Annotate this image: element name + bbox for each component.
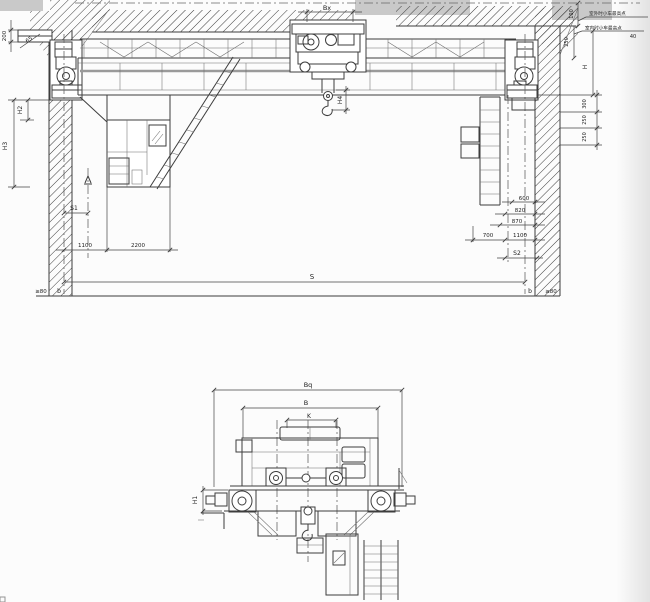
dim-roof-250: 250 bbox=[564, 37, 570, 47]
dim-bx-label: Bx bbox=[323, 4, 331, 12]
dim-h2: H2 bbox=[17, 106, 24, 115]
dim-h3: H3 bbox=[2, 142, 9, 151]
dim-600: 600 bbox=[519, 196, 530, 202]
dim-span-label: S bbox=[310, 273, 315, 281]
dim-min80-right: ≥80 bbox=[545, 289, 557, 295]
right-column bbox=[535, 26, 560, 296]
dim-870: 870 bbox=[512, 219, 523, 225]
operator-cab bbox=[80, 95, 170, 187]
right-end-truck bbox=[505, 34, 538, 294]
dim-roof-100: 100 bbox=[569, 9, 575, 19]
dim-250-a: 250 bbox=[582, 115, 588, 125]
dim-ceiling-200: 200 bbox=[2, 30, 8, 41]
dims-left-heights: H2 H3 bbox=[2, 98, 49, 189]
end-view: Bq B K bbox=[192, 381, 415, 600]
dim-820: 820 bbox=[515, 208, 526, 214]
dim-300: 300 bbox=[582, 99, 588, 109]
dim-1100-right: 1100 bbox=[513, 233, 527, 239]
dim-h4-label: H4 bbox=[337, 96, 344, 105]
note-indoor-max: 室内时小车最高点 bbox=[585, 25, 622, 32]
dims-left-approach: S1 1100 2200 bbox=[56, 187, 178, 252]
note-outdoor-max: 室外时小车最高点 bbox=[589, 10, 626, 17]
dim-1100-left: 1100 bbox=[78, 243, 92, 249]
crane-outline-drawing: 200 65 bbox=[0, 0, 650, 602]
dim-span: S ≥80 b b ≥80 bbox=[35, 273, 557, 295]
dim-crane-h: H bbox=[582, 65, 589, 70]
scan-smudge bbox=[0, 597, 5, 602]
dim-700: 700 bbox=[483, 233, 494, 239]
dim-k: K bbox=[307, 413, 312, 420]
dim-s2: S2 bbox=[513, 250, 521, 257]
dim-min80-left: ≥80 bbox=[35, 289, 47, 295]
dim-40: 40 bbox=[630, 34, 636, 40]
dim-b: B bbox=[304, 399, 308, 407]
dim-s1: S1 bbox=[70, 205, 78, 212]
dim-b-right: b bbox=[528, 288, 532, 295]
dim-2200: 2200 bbox=[131, 243, 145, 249]
dims-right-stack: 600 820 870 700 1100 S2 bbox=[465, 196, 545, 260]
dim-b-left: b bbox=[57, 288, 61, 295]
dim-h1: H1 bbox=[192, 496, 199, 505]
dim-bq: Bq bbox=[304, 381, 313, 389]
hoist-trolley bbox=[290, 20, 366, 116]
dim-250-b: 250 bbox=[582, 132, 588, 142]
